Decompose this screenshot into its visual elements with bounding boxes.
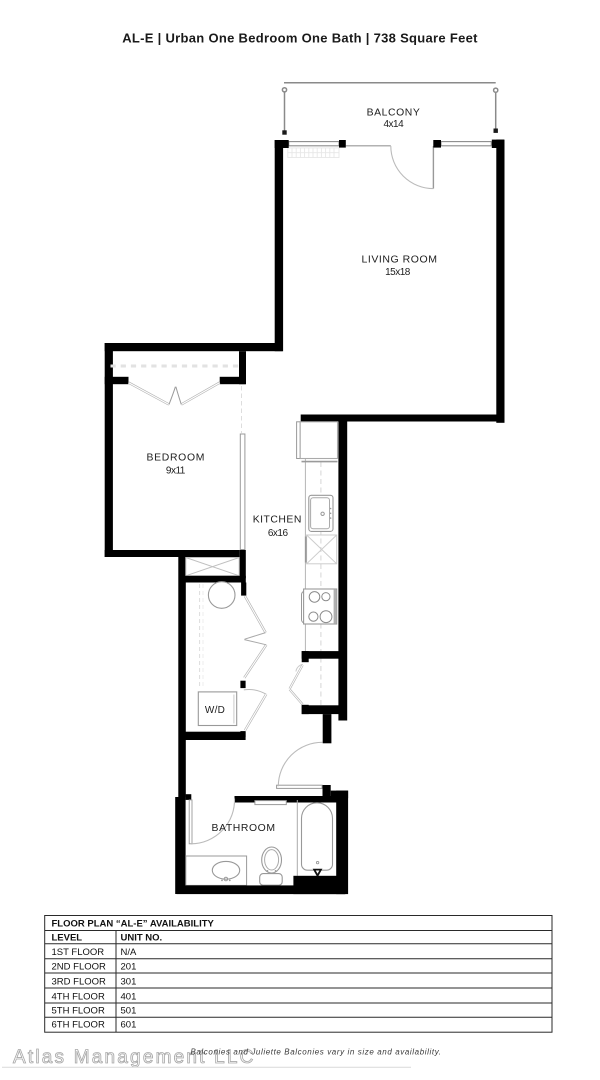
svg-text:2ND FLOOR: 2ND FLOOR [52,962,107,973]
svg-text:1ST FLOOR: 1ST FLOOR [52,947,105,958]
svg-text:KITCHEN: KITCHEN [253,515,302,526]
svg-text:BALCONY: BALCONY [367,107,421,118]
svg-text:W/D: W/D [205,705,225,716]
svg-text:AL-E | Urban One Bedroom One B: AL-E | Urban One Bedroom One Bath | 738 … [122,31,478,46]
svg-text:601: 601 [121,1020,137,1031]
svg-text:BATHROOM: BATHROOM [212,823,276,834]
svg-text:4x14: 4x14 [383,119,404,130]
svg-text:9x11: 9x11 [166,466,186,477]
svg-text:4TH FLOOR: 4TH FLOOR [52,991,105,1002]
svg-text:FLOOR PLAN “AL-E” AVAILABILITY: FLOOR PLAN “AL-E” AVAILABILITY [52,919,215,930]
svg-text:N/A: N/A [121,947,138,958]
svg-text:3RD FLOOR: 3RD FLOOR [52,976,107,987]
svg-text:Balconies and Juliette Balconi: Balconies and Juliette Balconies vary in… [190,1047,441,1056]
svg-text:6x16: 6x16 [268,528,289,539]
svg-text:301: 301 [121,976,137,987]
svg-text:201: 201 [121,962,137,973]
svg-text:15x18: 15x18 [385,267,411,278]
svg-text:6TH FLOOR: 6TH FLOOR [52,1020,105,1031]
svg-text:501: 501 [121,1006,137,1017]
svg-text:LIVING ROOM: LIVING ROOM [361,253,437,265]
svg-text:LEVEL: LEVEL [52,933,83,944]
svg-text:401: 401 [121,991,137,1002]
svg-text:5TH FLOOR: 5TH FLOOR [52,1006,105,1017]
svg-text:UNIT NO.: UNIT NO. [121,933,163,944]
svg-text:BEDROOM: BEDROOM [147,452,206,463]
